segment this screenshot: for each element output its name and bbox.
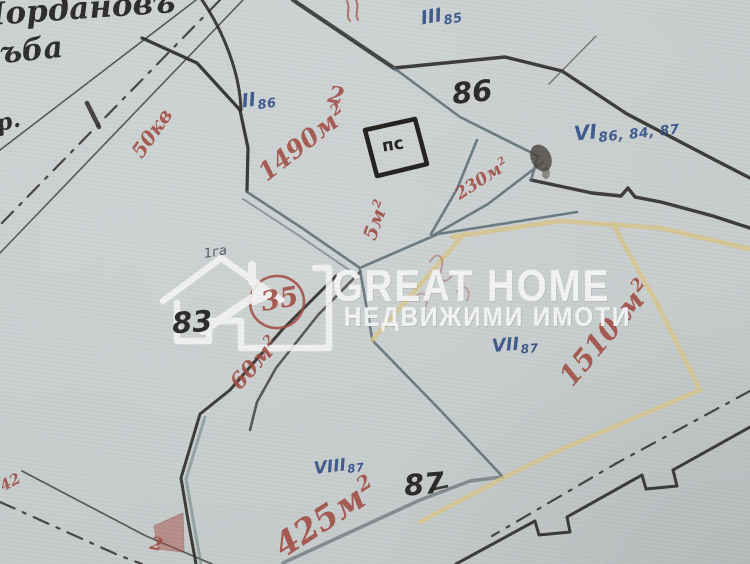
parcel-sub: 87 — [520, 341, 539, 357]
watermark-title: GREAT HOME — [333, 264, 610, 309]
red-scribble — [347, 0, 358, 21]
parcel-boundary — [142, 38, 240, 110]
pencil-boundary — [362, 212, 577, 267]
pencil-overlay — [186, 417, 205, 564]
plot-number-86: 86 — [451, 76, 494, 109]
tiny-handwritten-note: 1га — [203, 244, 228, 261]
parcel-boundary — [293, 0, 394, 68]
pencil-boundary — [247, 192, 360, 268]
parcel-label-vii-87: VII87 — [491, 334, 539, 358]
parcel-boundary — [202, 0, 241, 110]
handwritten-note: ъба — [0, 33, 64, 69]
stepped-boundary-line — [456, 427, 750, 564]
watermark-subtitle: НЕДВИЖИМИ ИМОТИ — [344, 305, 631, 332]
parcel-roman: VI — [573, 119, 598, 145]
parcel-sub: 86 — [257, 96, 278, 113]
parcel-boundary — [240, 110, 248, 191]
yellow-boundary — [420, 390, 700, 522]
parcel-label-ii-86: II86 — [241, 88, 278, 115]
plot-number-87: 87 — [403, 468, 446, 500]
cadastral-map-scan: Йордановъ ъба р. 1га III85 II86 VI86, 84… — [0, 0, 750, 564]
parcel-boundary-north — [394, 57, 750, 178]
road-centerline-dashdot — [0, 502, 142, 564]
pencil-smudge — [542, 167, 550, 179]
pencil-tick — [87, 103, 99, 127]
pencil-smudge — [526, 141, 556, 175]
parcel-roman: VII — [491, 334, 520, 357]
parcel-roman: II — [240, 89, 257, 113]
plot-number-83: 83 — [171, 307, 213, 339]
circled-plot-number-35: 35 — [259, 283, 301, 316]
pencil-boundary — [372, 340, 503, 477]
parcel-roman: III — [419, 4, 444, 29]
building-label: пс — [381, 135, 405, 155]
parcel-roman: VIII — [313, 455, 347, 479]
